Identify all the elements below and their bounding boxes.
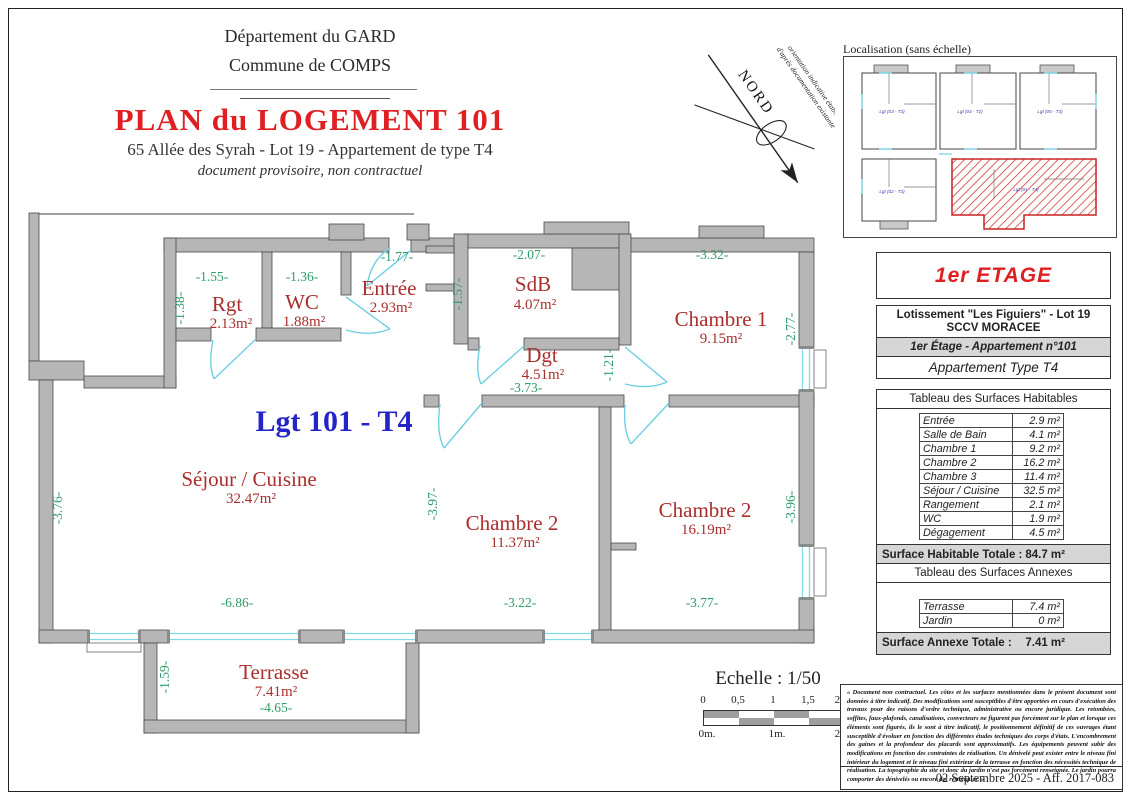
table-row: Chambre 19.2 m² (920, 442, 1064, 456)
north-arrowhead (781, 162, 804, 186)
dimension: -1.21- (601, 348, 616, 381)
north-arrow: orientation indicative établie d'après d… (685, 30, 835, 210)
row-label: Dégagement (920, 526, 1013, 540)
table-row: WC1.9 m² (920, 512, 1064, 526)
scale-bottom-label: 1m. (769, 728, 786, 740)
mini-bump (880, 221, 908, 229)
row-label: Salle de Bain (920, 428, 1013, 442)
row-value: 0 m² (1013, 614, 1064, 628)
table-row: Rangement2.1 m² (920, 498, 1064, 512)
dimension: -1.55- (196, 269, 229, 284)
row-value: 2.1 m² (1013, 498, 1064, 512)
dimension: -1.77- (381, 249, 414, 264)
page-subtitle: 65 Allée des Syrah - Lot 19 - Appartemen… (60, 140, 560, 160)
dimension: -1.59- (157, 660, 172, 693)
row-value: 16.2 m² (1013, 456, 1064, 470)
room-area: 7.41m² (255, 684, 298, 700)
mini-unit-highlighted (952, 159, 1096, 229)
dimension: -2.77- (783, 312, 798, 345)
scale-tick: 1 (770, 694, 776, 706)
row-value: 2.9 m² (1013, 414, 1064, 428)
room-area: 16.19m² (681, 522, 731, 538)
surface-annexe-total: Surface Annexe Totale : 7.41 m² (877, 632, 1110, 654)
dimension: -3.96- (783, 490, 798, 523)
scale-tick: 0 (700, 694, 706, 706)
room-name: Chambre 2 (466, 511, 559, 535)
dimension: -6.86- (221, 595, 254, 610)
dimension: -1.57- (450, 277, 465, 310)
row-label: Entrée (920, 414, 1013, 428)
row-label: Terrasse (920, 600, 1013, 614)
mini-unit-label: Lgt (03 - T3) (879, 109, 905, 114)
row-label: Jardin (920, 614, 1013, 628)
row-value: 32.5 m² (1013, 484, 1064, 498)
room-name: Séjour / Cuisine (181, 467, 316, 491)
dimension: -3.76- (50, 491, 65, 524)
room-area: 2.13m² (210, 316, 253, 332)
provisional-note: document provisoire, non contractuel (60, 163, 560, 180)
room-name: Rgt (212, 292, 243, 316)
table-row: Entrée2.9 m² (920, 414, 1064, 428)
row-value: 11.4 m² (1013, 470, 1064, 484)
walls (29, 213, 814, 733)
scale-title: Echelle : 1/50 (688, 668, 848, 690)
dimension: -1.36- (286, 269, 319, 284)
room-area: 11.37m² (490, 535, 540, 551)
surfaces-annexes-title: Tableau des Surfaces Annexes (877, 564, 1110, 583)
row-value: 1.9 m² (1013, 512, 1064, 526)
dimension: -3.97- (425, 487, 440, 520)
scale-bottom-label: 0m. (699, 728, 716, 740)
row-label: WC (920, 512, 1013, 526)
room-area: 32.47m² (226, 491, 276, 507)
date-reference: 02 Septembre 2025 - Aff. 2017-083 (841, 766, 1122, 789)
room-name: Entrée (362, 276, 417, 300)
row-value: 9.2 m² (1013, 442, 1064, 456)
row-label: Rangement (920, 498, 1013, 512)
disclaimer-box: « Document non contractuel. Les côtes et… (840, 684, 1123, 790)
title-block: Département du GARD Commune de COMPS (90, 26, 530, 76)
mini-unit-label-highlighted: Lgt (01 - T4) (1013, 187, 1039, 192)
info-table: Lotissement "Les Figuiers" - Lot 19 SCCV… (876, 305, 1111, 379)
dimension: -3.22- (504, 595, 537, 610)
localisation-box: Lgt (03 - T3) Lgt (04 - T2) Lgt (05 - T3… (843, 56, 1117, 238)
etage-appartement-line: 1er Étage - Appartement n°101 (877, 338, 1110, 357)
table-row: Chambre 216.2 m² (920, 456, 1064, 470)
table-row: Terrasse7.4 m² (920, 600, 1064, 614)
room-name: Chambre 2 (659, 498, 752, 522)
mini-unit-label: Lgt (05 - T3) (1037, 109, 1063, 114)
north-label: NORD (734, 67, 776, 118)
room-area: 4.07m² (514, 297, 557, 313)
room-name: Dgt (526, 343, 558, 367)
room-name: SdB (515, 272, 551, 296)
surfaces-habitables-rows: Entrée2.9 m² Salle de Bain4.1 m² Chambre… (919, 413, 1064, 540)
type-line: Appartement Type T4 (877, 357, 1110, 378)
row-label: Chambre 1 (920, 442, 1013, 456)
row-label: Séjour / Cuisine (920, 484, 1013, 498)
dimension: -3.32- (696, 247, 729, 262)
commune-label: Commune de COMPS (90, 55, 530, 76)
mini-unit-label: Lgt (04 - T2) (957, 109, 983, 114)
sccv-line: SCCV MORACEE (877, 321, 1110, 338)
dimension: -1.38- (172, 291, 187, 324)
dimension: -3.73- (510, 380, 543, 395)
row-value: 4.1 m² (1013, 428, 1064, 442)
scale-bar (703, 710, 845, 726)
table-row: Séjour / Cuisine32.5 m² (920, 484, 1064, 498)
room-name: Terrasse (239, 660, 309, 684)
table-row: Chambre 311.4 m² (920, 470, 1064, 484)
row-value: 4.5 m² (1013, 526, 1064, 540)
header-rule-2 (240, 98, 390, 99)
table-row: Salle de Bain4.1 m² (920, 428, 1064, 442)
lotissement-line: Lotissement "Les Figuiers" - Lot 19 (877, 306, 1110, 321)
surfaces-annexes-table: Tableau des Surfaces Annexes Terrasse7.4… (876, 563, 1111, 655)
surfaces-annexes-rows: Terrasse7.4 m² Jardin0 m² (919, 599, 1064, 628)
dimension: -3.77- (686, 595, 719, 610)
floor-label: 1er ETAGE (876, 252, 1111, 299)
dimension: -4.65- (260, 700, 293, 715)
room-name: WC (285, 290, 319, 314)
unit-label: Lgt 101 - T4 (256, 405, 413, 438)
room-area: 1.88m² (283, 314, 326, 330)
row-value: 7.4 m² (1013, 600, 1064, 614)
surfaces-habitables-table: Tableau des Surfaces Habitables Entrée2.… (876, 389, 1111, 567)
dimension: -2.07- (513, 247, 546, 262)
table-row: Dégagement4.5 m² (920, 526, 1064, 540)
total-label: Surface Annexe Totale : (877, 633, 1025, 654)
localisation-miniplan: Lgt (03 - T3) Lgt (04 - T2) Lgt (05 - T3… (844, 57, 1114, 235)
page-title: PLAN du LOGEMENT 101 (60, 102, 560, 138)
total-value: 7.41 m² (1025, 633, 1110, 654)
scale-tick: 1,5 (801, 694, 815, 706)
surfaces-habitables-title: Tableau des Surfaces Habitables (877, 390, 1110, 409)
room-name: Chambre 1 (675, 307, 768, 331)
room-area: 2.93m² (370, 300, 413, 316)
mini-unit-label: Lgt (02 - T3) (879, 189, 905, 194)
row-label: Chambre 3 (920, 470, 1013, 484)
plan-sheet: Département du GARD Commune de COMPS PLA… (0, 0, 1131, 800)
localisation-title: Localisation (sans échelle) (843, 42, 971, 57)
room-area: 9.15m² (700, 331, 743, 347)
scale-tick: 0,5 (731, 694, 745, 706)
north-caption-2: d'après documentation existante (775, 45, 835, 130)
table-row: Jardin0 m² (920, 614, 1064, 628)
row-label: Chambre 2 (920, 456, 1013, 470)
department-label: Département du GARD (90, 26, 530, 47)
header-rule-1 (210, 89, 417, 90)
